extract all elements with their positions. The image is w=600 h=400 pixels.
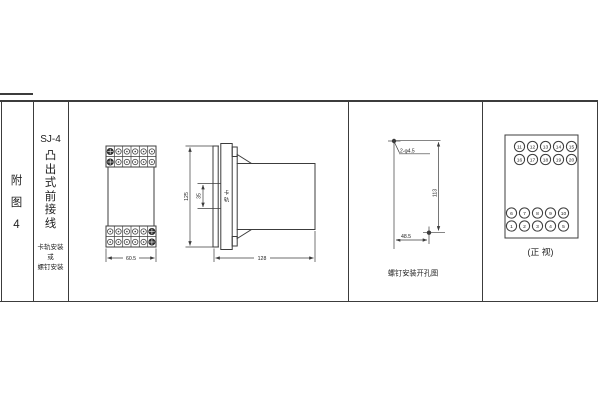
terminal-number: 1 [510,224,513,230]
side-height-dim: 125 [184,192,190,201]
terminal-number: 16 [517,157,523,163]
figure-canvas: 附 图 4 SJ-4 凸 出 式 前 接 线 卡轨安装 或 螺钉安装 [0,0,600,400]
terminal-number: 14 [556,144,562,150]
front-width-dim: 60.5 [126,256,136,262]
terminal-row-6-10: 6 7 8 9 10 [506,208,568,218]
terminal-view-drawing: 11 12 13 14 15 16 17 18 19 20 6 7 8 9 10 [505,135,578,257]
terminal-number: 12 [530,144,536,150]
terminal-number: 3 [536,224,539,230]
terminal-number: 19 [556,157,562,163]
terminal-number: 7 [523,211,526,217]
terminal-number: 17 [530,157,536,163]
terminal-row-11-15: 11 12 13 14 15 [514,141,576,151]
rail-label-char: 卡 [224,189,230,197]
terminal-number: 20 [569,157,575,163]
terminal-number: 13 [543,144,549,150]
terminal-number: 9 [549,211,552,217]
terminal-number: 6 [510,211,513,217]
terminal-number: 5 [562,224,565,230]
drill-view-caption: 螺钉安装开孔图 [388,269,438,278]
terminal-number: 18 [543,157,549,163]
drill-height-dim: 113 [433,189,439,197]
rail-height-dim: 35 [197,193,203,199]
rail-label-char: 轨 [224,196,230,204]
side-view-drawing: 125 35 卡 轨 128 [183,144,316,263]
front-view-drawing: 60.5 [106,146,156,262]
drawings-svg: 60.5 125 35 卡 轨 [0,0,600,400]
terminal-number: 2 [523,224,526,230]
terminal-number: 8 [536,211,539,217]
holes-label: 2-φ4.5 [400,148,415,154]
drill-width-dim: 48.5 [401,234,411,240]
terminal-number: 11 [517,144,522,150]
terminal-number: 4 [549,224,552,230]
terminal-number: 10 [561,211,567,217]
terminal-row-16-20: 16 17 18 19 20 [514,154,576,164]
drill-view-drawing: 2-φ4.5 113 48.5 螺钉安装开孔图 [388,139,445,278]
side-depth-dim: 128 [258,256,267,262]
terminal-view-caption: (正 视) [528,246,554,257]
terminal-row-1-5: 1 2 3 4 5 [506,221,568,231]
terminal-number: 15 [569,144,575,150]
